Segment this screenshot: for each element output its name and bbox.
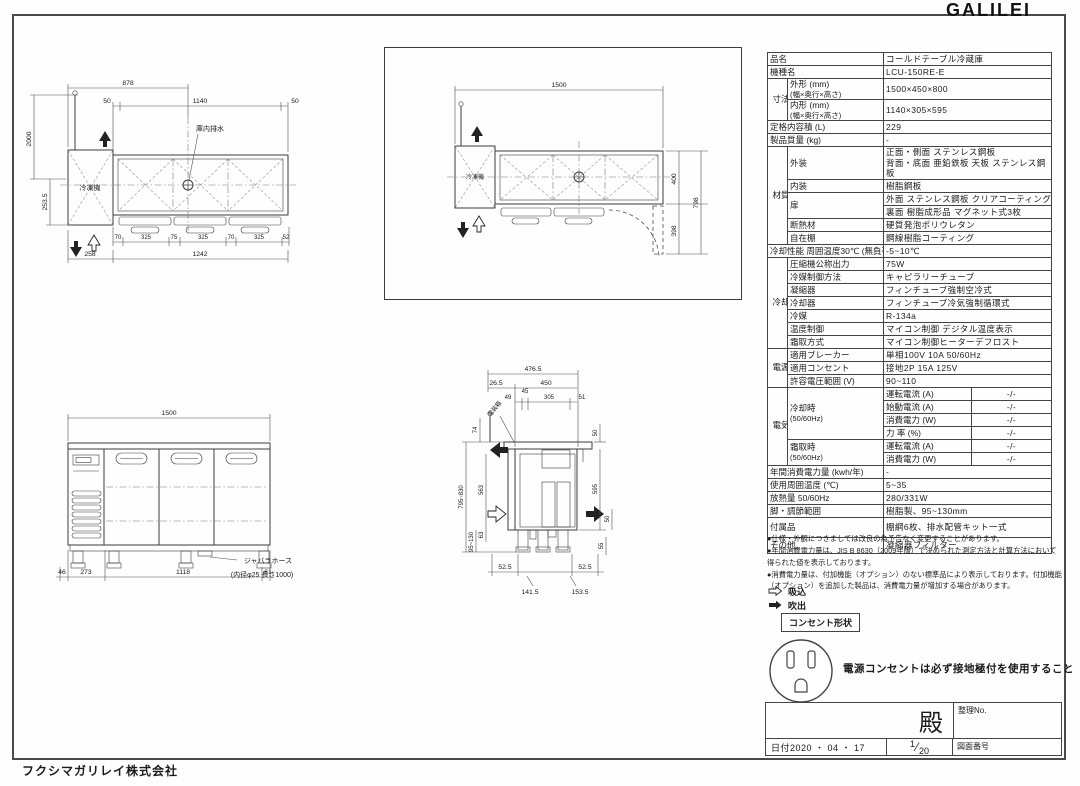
spec-value-cell: キャピラリーチューブ (884, 270, 1052, 283)
spec-value-cell: 229 (884, 121, 1052, 134)
cabinet-body-plan (60, 117, 296, 231)
note-line: ●消費電力量は、付加機能（オプション）のない標準品により表示しております。付加機… (767, 569, 1063, 592)
svg-text:795~830: 795~830 (459, 485, 465, 509)
spec-value-cell: 接地2P 15A 125V (884, 361, 1052, 374)
spec-value-cell: 樹脂鋼板 (884, 179, 1052, 192)
svg-text:52: 52 (283, 235, 290, 241)
dim-door-pitch-chain: 70 325 75 325 70 325 52 (113, 227, 290, 246)
svg-text:1242: 1242 (192, 251, 207, 258)
spec-label-cell: 内装 (788, 179, 884, 192)
svg-text:563: 563 (479, 484, 485, 495)
scale-field: 1⁄20 (887, 739, 953, 756)
svg-text:595: 595 (593, 483, 599, 494)
seiri-no-label: 整理No. (954, 703, 1061, 738)
svg-text:476.5: 476.5 (524, 366, 541, 373)
svg-text:273: 273 (80, 569, 92, 576)
dim-878: 878 (68, 80, 188, 147)
title-block-top-row: 殿 整理No. (766, 703, 1061, 739)
spec-value-cell: マイコン制御 デジタル温度表示 (884, 322, 1052, 335)
hose-sub-label: (内径φ25 長さ1000) (231, 570, 294, 579)
drawing-sheet: GALILEI フクシマガリレイ株式会社 2000 253.5 878 (0, 0, 1080, 786)
dim-1500: 1500 (455, 82, 663, 148)
blowout-down-arrow-icon (457, 222, 469, 238)
svg-text:878: 878 (122, 80, 134, 87)
intake-right-arrow-icon (488, 506, 506, 522)
dim-bottom: 52.5 52.5 141.5 153.5 (488, 554, 604, 596)
outlet-shape-label: コンセント形状 (781, 613, 860, 632)
spec-value-cell: コールドテーブル冷蔵庫 (884, 53, 1052, 66)
machine-compartment: 冷凍機 (68, 150, 113, 225)
outlet-icon (766, 636, 836, 706)
spec-label-cell: 機種名 (768, 66, 884, 79)
date-field: 日付2020 ・ 04 ・ 17 (766, 739, 887, 756)
svg-text:325: 325 (254, 235, 265, 241)
spec-table: 品名 コールドテーブル冷蔵庫 機種名 LCU-150RE-E 寸法 外形 (mm… (767, 52, 1051, 554)
spec-label-cell: 霜取時(50/60Hz) (788, 439, 884, 465)
svg-text:50: 50 (593, 429, 599, 436)
spec-value-cell: LCU-150RE-E (884, 66, 1052, 79)
spec-value-cell: フィンチューブ強制空冷式 (884, 283, 1052, 296)
drain-hose (73, 91, 77, 150)
dim-1500: 1500 (68, 410, 270, 441)
svg-text:305: 305 (544, 395, 555, 401)
svg-text:253.5: 253.5 (42, 193, 49, 210)
svg-text:400: 400 (671, 173, 678, 185)
spec-value-cell: -5~10℃ (884, 244, 1052, 257)
svg-text:141.5: 141.5 (521, 589, 538, 596)
legs (516, 530, 570, 552)
spec-value-cell: 硬質発泡ポリウレタン (884, 218, 1052, 231)
svg-text:49: 49 (505, 395, 512, 401)
company-name: フクシマガリレイ株式会社 (22, 762, 178, 779)
dim-253-5: 253.5 (42, 179, 70, 225)
spec-value-cell: - (884, 465, 1052, 478)
note-line: ●仕様・外観につきましては改良の為予告なく変更することがあります。 (767, 533, 1063, 544)
spec-sublabel-cell: 消費電力 (W) (884, 452, 972, 465)
title-block-bottom-row: 日付2020 ・ 04 ・ 17 1⁄20 図面番号 (766, 739, 1061, 756)
spec-value-cell: -/- (972, 413, 1052, 426)
spec-value-cell: 外面 ステンレス鋼板 クリアコーティング (884, 192, 1052, 205)
spec-label-cell: 外形 (mm)(幅×奥行×高さ) (788, 79, 884, 100)
spec-label-cell: 圧縮機公称出力 (788, 257, 884, 270)
spec-group-cell: 電源 (768, 348, 788, 387)
door-handles (116, 453, 257, 464)
spec-value-cell: フィンチューブ冷気強制循環式 (884, 296, 1052, 309)
spec-label-cell: 適用コンセント (788, 361, 884, 374)
side-section-drawing: 476.5 26.5 450 49 45 305 51 電装箱 (430, 362, 700, 620)
svg-text:1500: 1500 (161, 410, 176, 417)
spec-label-cell: 外装 (788, 147, 884, 180)
spec-value-cell: マイコン制御ヒーターデフロスト (884, 335, 1052, 348)
svg-text:798: 798 (693, 197, 700, 209)
svg-text:450: 450 (540, 380, 552, 387)
spec-label-cell: 温度制御 (788, 322, 884, 335)
blowout-up-arrow-icon (471, 126, 483, 142)
spec-label-cell: 断熱材 (788, 218, 884, 231)
spec-label-cell: 冷媒 (788, 309, 884, 322)
open-door (609, 206, 663, 256)
legend-intake-label: 吸込 (788, 585, 806, 598)
dim-right-heights: 50 595 50 55 (579, 424, 612, 555)
grounding-warning-text: 電源コンセントは必ず接地極付を使用すること (843, 661, 1074, 676)
legend-blowout-row: 吹出 (768, 598, 806, 612)
hose-callout: ジャバラホース (内径φ25 長さ1000) (210, 557, 293, 579)
doors-plan (501, 208, 604, 224)
title-block: 殿 整理No. 日付2020 ・ 04 ・ 17 1⁄20 図面番号 (765, 702, 1062, 756)
svg-text:51: 51 (579, 395, 586, 401)
spec-value-cell: -/- (972, 400, 1052, 413)
spec-label-cell: 冷却時(50/60Hz) (788, 387, 884, 439)
note-line: ●年間消費電力量は、JIS B 8630（2009年版）で決められた測定方法と計… (767, 545, 1063, 568)
dim-2000: 2000 (26, 95, 78, 179)
louver-grille (72, 491, 101, 538)
galilei-logo: GALILEI (946, 0, 1031, 21)
dim-26-450: 26.5 450 (488, 380, 577, 447)
spec-label-cell: 適用ブレーカー (788, 348, 884, 361)
airflow-legend: 吸込 吹出 (768, 584, 806, 612)
blowout-arrow-icon (768, 600, 783, 610)
front-elevation-drawing: 1500 (30, 405, 350, 620)
svg-text:2000: 2000 (26, 131, 33, 146)
svg-text:63: 63 (479, 531, 485, 538)
spec-value-cell: -/- (972, 452, 1052, 465)
blowout-right-arrow-icon (586, 506, 604, 522)
svg-text:1500: 1500 (551, 82, 566, 89)
svg-text:52.5: 52.5 (578, 564, 591, 571)
control-panel (73, 455, 99, 471)
spec-label-cell: 内形 (mm)(幅×奥行×高さ) (788, 100, 884, 121)
svg-text:45: 45 (522, 389, 529, 395)
spec-group-cell: 寸法 (768, 79, 788, 121)
spec-label-cell: 年間消費電力量 (kwh/年) (768, 465, 884, 478)
intake-up-arrow-icon (473, 216, 485, 232)
spec-sublabel-cell: 力 率 (%) (884, 426, 972, 439)
spec-label-cell: 冷却性能 周囲温度30℃ (無負荷) (768, 244, 884, 257)
spec-label-cell: 許容電圧範囲 (V) (788, 374, 884, 387)
door-centerlines (106, 487, 268, 521)
doors-plan (119, 217, 281, 233)
svg-text:50: 50 (605, 515, 611, 522)
spec-value-cell: 1140×305×595 (884, 100, 1052, 121)
spec-label-cell: 放熱量 50/60Hz (768, 491, 884, 504)
cabinet-side (504, 442, 592, 530)
plan-door-swing-drawing: 1500 冷凍機 (383, 46, 743, 301)
svg-text:55: 55 (599, 542, 605, 549)
spec-value-cell: - (884, 134, 1052, 147)
base-rail (70, 545, 268, 556)
spec-label-cell: 製品質量 (kg) (768, 134, 884, 147)
blowout-left-arrow-icon (490, 442, 508, 458)
spec-group-cell: 材質 (768, 147, 788, 245)
svg-text:1118: 1118 (176, 569, 190, 576)
spec-value-cell: 280/331W (884, 491, 1052, 504)
hose-label: ジャバラホース (244, 557, 292, 565)
spec-sublabel-cell: 運転電流 (A) (884, 439, 972, 452)
drawing-no-label: 図面番号 (953, 739, 1061, 756)
svg-text:398: 398 (671, 225, 678, 237)
spec-value-cell: 1500×450×800 (884, 79, 1052, 100)
spec-sublabel-cell: 始動電流 (A) (884, 400, 972, 413)
legend-intake-row: 吸込 (768, 584, 806, 598)
blowout-up-arrow-icon (99, 131, 111, 147)
drain-callout: 庫内排水 (189, 124, 224, 180)
dim-49-45-305-51: 49 45 305 51 (505, 389, 586, 410)
intake-up-arrow-icon (88, 235, 100, 251)
machine-label: 冷凍機 (80, 183, 101, 192)
spec-sublabel-cell: 運転電流 (A) (884, 387, 972, 400)
dim-left-heights: 74 795~830 563 63 95~130 (459, 418, 516, 552)
svg-text:75: 75 (171, 235, 178, 241)
svg-text:74: 74 (473, 426, 479, 433)
spec-group-cell: 冷却装置 (768, 257, 788, 348)
spec-value-cell: 75W (884, 257, 1052, 270)
svg-text:95~130: 95~130 (469, 531, 475, 552)
spec-group-cell: 電気特性 (768, 387, 788, 465)
spec-value-cell: 5~35 (884, 478, 1052, 491)
dim-798: 798 (693, 151, 701, 254)
notes: ●仕様・外観につきましては改良の為予告なく変更することがあります。 ●年間消費電… (767, 533, 1063, 592)
spec-label-cell: 冷媒制御方法 (788, 270, 884, 283)
spec-value-cell: -/- (972, 439, 1052, 452)
svg-text:70: 70 (115, 235, 122, 241)
spec-value-cell: -/- (972, 387, 1052, 400)
spec-label-cell: 霜取方式 (788, 335, 884, 348)
svg-text:50: 50 (103, 98, 111, 105)
svg-text:325: 325 (141, 235, 152, 241)
dim-50-1140-50: 50 1140 50 (103, 98, 299, 152)
legs (71, 551, 271, 568)
spec-value-cell: 鋼線樹脂コーティング (884, 231, 1052, 244)
legend-blowout-label: 吹出 (788, 599, 806, 612)
svg-text:26.5: 26.5 (489, 380, 502, 387)
spec-sublabel-cell: 消費電力 (W) (884, 413, 972, 426)
svg-text:50: 50 (291, 98, 299, 105)
spec-value-cell: 単相100V 10A 50/60Hz (884, 348, 1052, 361)
spec-label-cell: 脚・調節範囲 (768, 504, 884, 517)
svg-text:325: 325 (198, 235, 209, 241)
spec-value-cell: 樹脂製、95~130mm (884, 504, 1052, 517)
svg-text:258: 258 (84, 251, 96, 258)
dim-400-398: 400 398 (666, 151, 708, 254)
svg-text:153.5: 153.5 (571, 589, 588, 596)
svg-text:46: 46 (58, 569, 66, 576)
svg-text:70: 70 (228, 235, 235, 241)
addressee-dono: 殿 (766, 703, 954, 738)
drain-hose (459, 102, 463, 146)
blowout-down-arrow-icon (70, 241, 82, 257)
spec-label-cell: 自在棚 (788, 231, 884, 244)
spec-label-cell: 冷却器 (788, 296, 884, 309)
svg-text:52.5: 52.5 (498, 564, 511, 571)
spec-label-cell: 扉 (788, 192, 884, 218)
spec-value-cell: -/- (972, 426, 1052, 439)
spec-value-cell: 90~110 (884, 374, 1052, 387)
drain-label: 庫内排水 (196, 124, 224, 133)
spec-value-cell: 正面・側面 ステンレス鋼板背面・底面 亜鉛鉄板 天板 ステンレス鋼板 (884, 147, 1052, 180)
spec-label-cell: 品名 (768, 53, 884, 66)
plan-top-view-drawing: 2000 253.5 878 50 1140 50 (20, 55, 370, 300)
spec-value-cell: R-134a (884, 309, 1052, 322)
spec-label-cell: 凝縮器 (788, 283, 884, 296)
intake-arrow-icon (768, 586, 783, 596)
svg-text:1140: 1140 (193, 98, 208, 105)
spec-value-cell: 裏面 樹脂成形品 マグネット式3枚 (884, 205, 1052, 218)
spec-label-cell: 定格内容積 (L) (768, 121, 884, 134)
spec-label-cell: 使用周囲温度 (℃) (768, 478, 884, 491)
